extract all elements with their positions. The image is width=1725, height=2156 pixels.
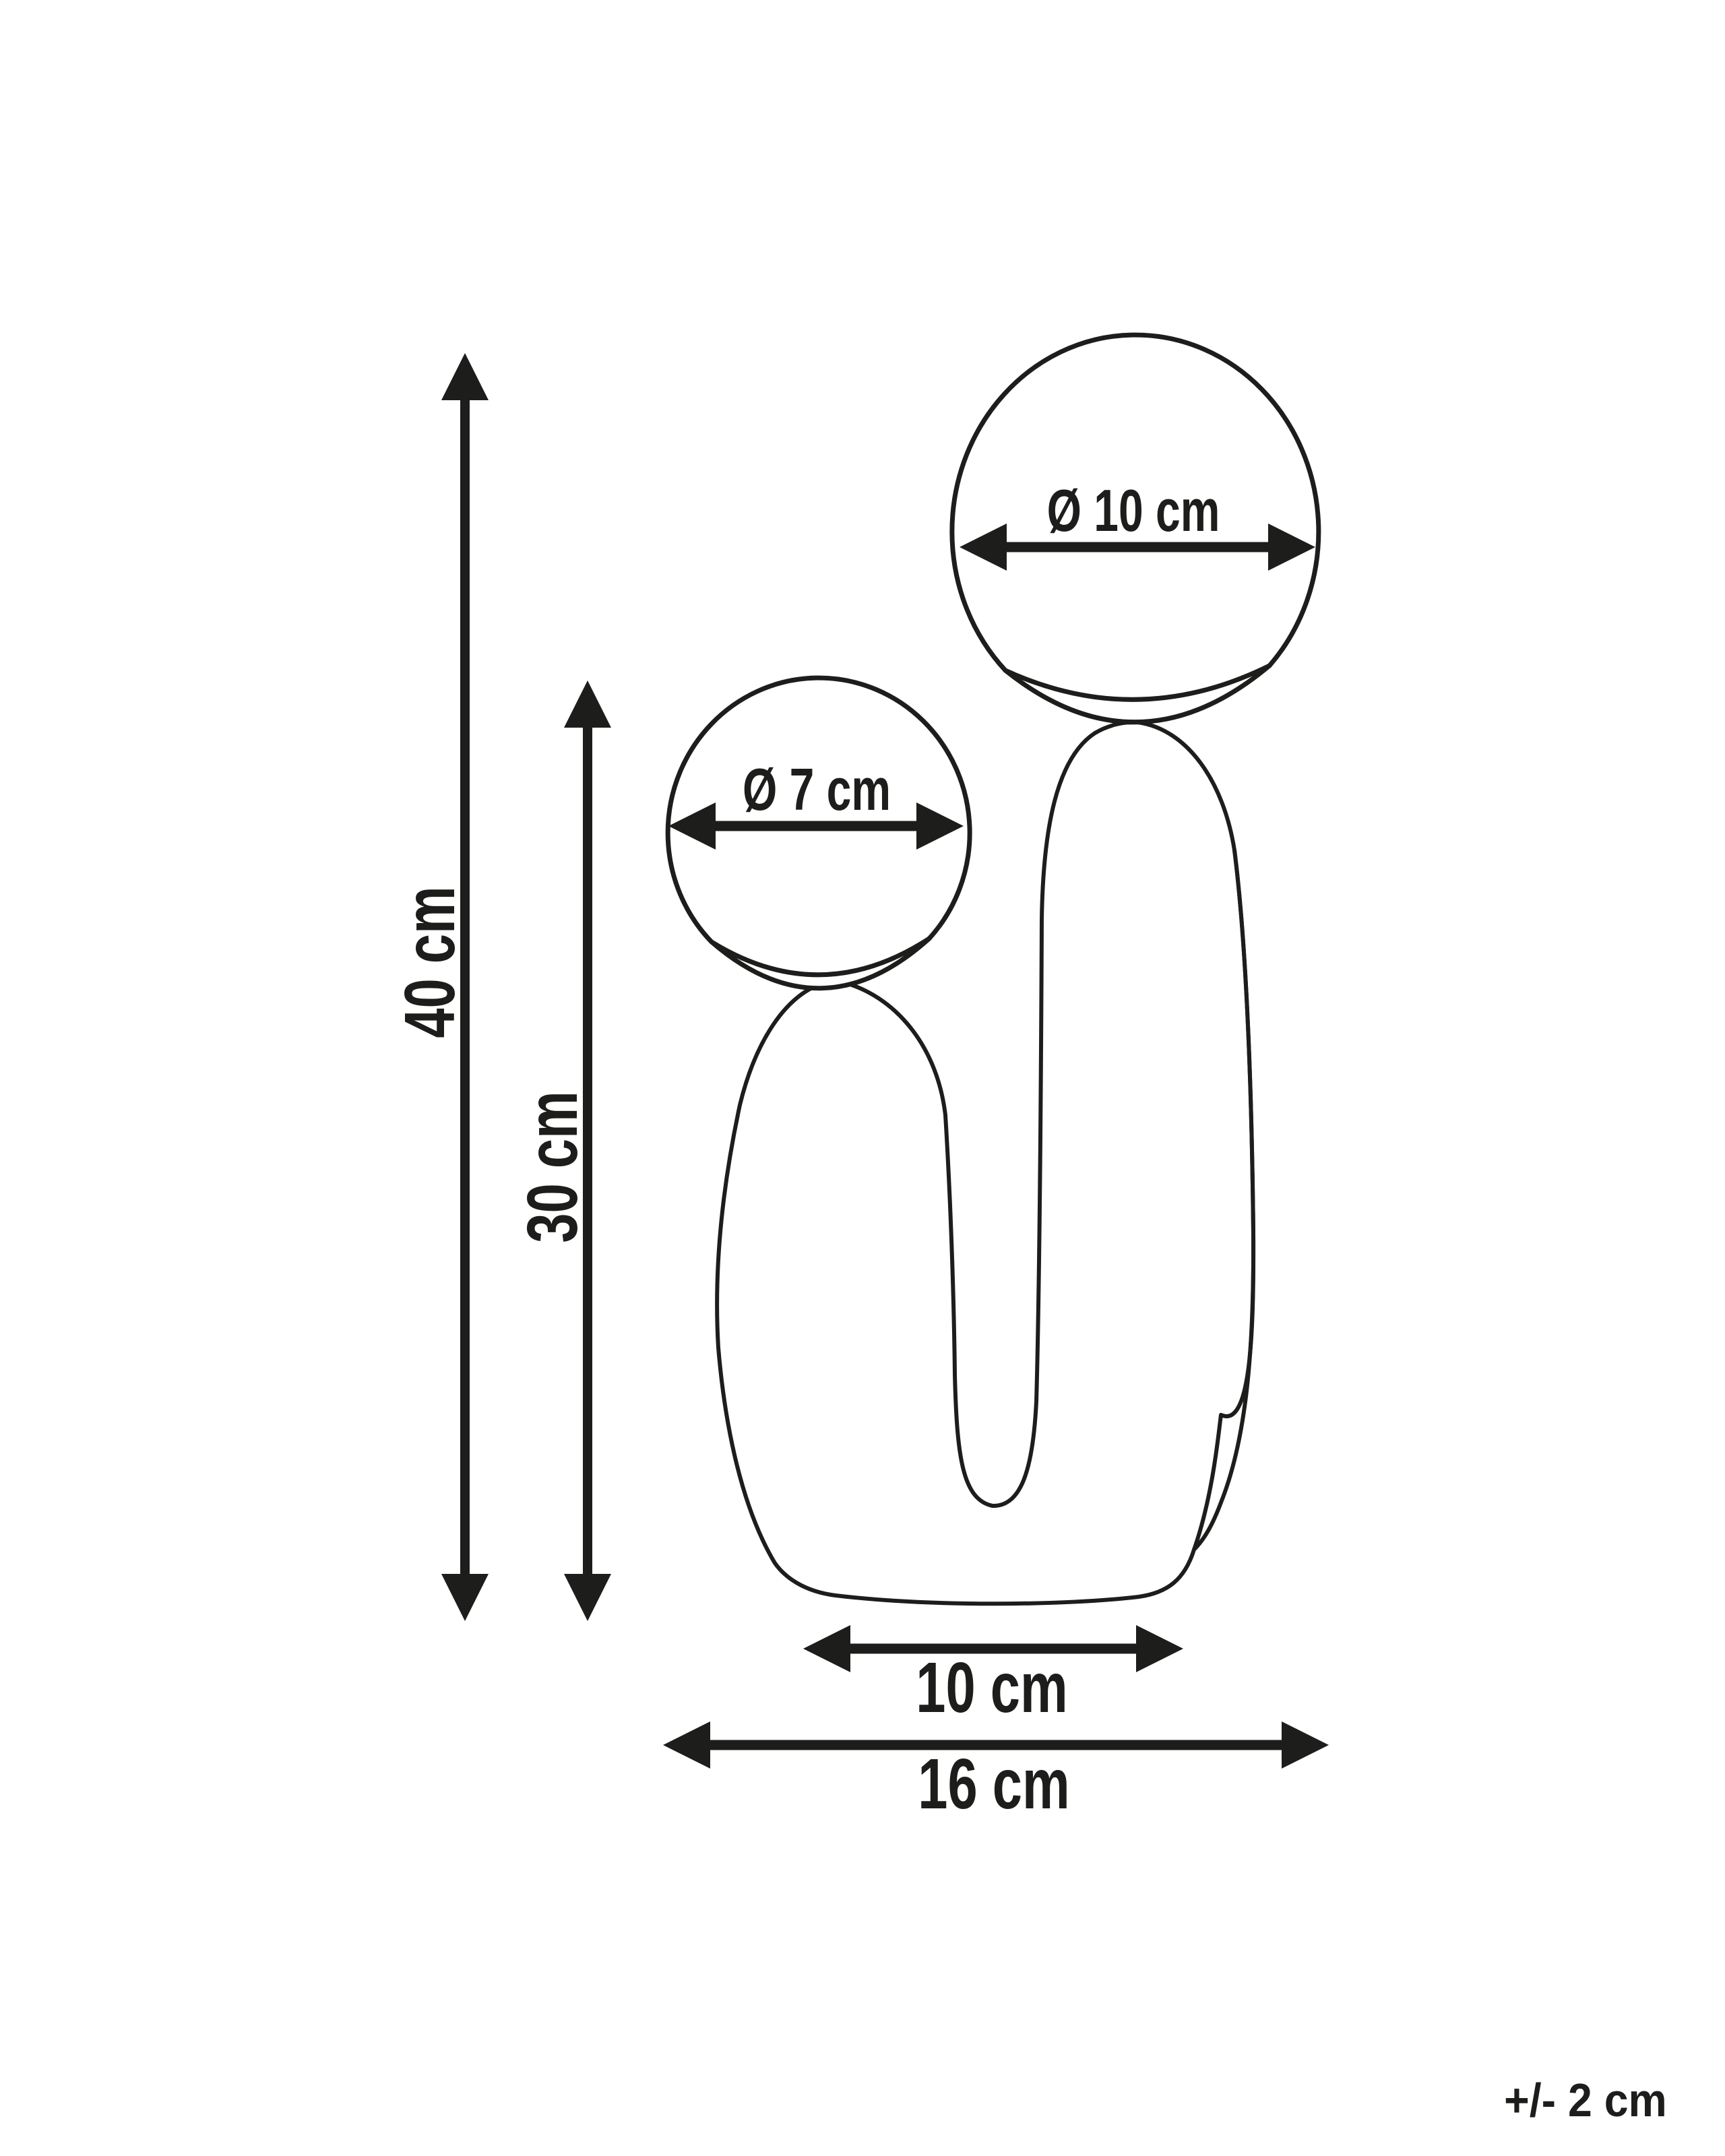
dim-label-small-globe-height-text: 30 cm [517, 1091, 588, 1242]
lamp-body-outline [717, 722, 1253, 1604]
dim-label-total-height: 40 cm [394, 861, 466, 1064]
dimension-diagram-canvas [0, 0, 1725, 2156]
dim-label-total-height-text: 40 cm [394, 886, 466, 1038]
dim-label-small-globe-height: 30 cm [517, 1066, 588, 1269]
tolerance-note-text: +/- 2 cm [1504, 2076, 1667, 2124]
dim-label-small-globe-diameter: Ø 7 cm [718, 760, 915, 819]
small-globe-socket [712, 939, 929, 988]
dim-label-small-globe-diameter-text: Ø 7 cm [743, 760, 891, 819]
dim-label-base-width: 10 cm [891, 1652, 1094, 1723]
large-globe-socket [1005, 666, 1269, 722]
dim-label-total-width: 16 cm [893, 1748, 1096, 1820]
dim-label-total-width-text: 16 cm [918, 1748, 1069, 1820]
dim-label-large-globe-diameter-text: Ø 10 cm [1047, 481, 1220, 540]
dimension-diagram-page: 40 cm 30 cm Ø 10 cm Ø 7 cm 10 cm 16 cm +… [0, 0, 1725, 2156]
dim-label-large-globe-diameter: Ø 10 cm [1018, 481, 1249, 540]
tolerance-note: +/- 2 cm [1497, 2076, 1674, 2124]
dim-label-base-width-text: 10 cm [916, 1652, 1067, 1723]
